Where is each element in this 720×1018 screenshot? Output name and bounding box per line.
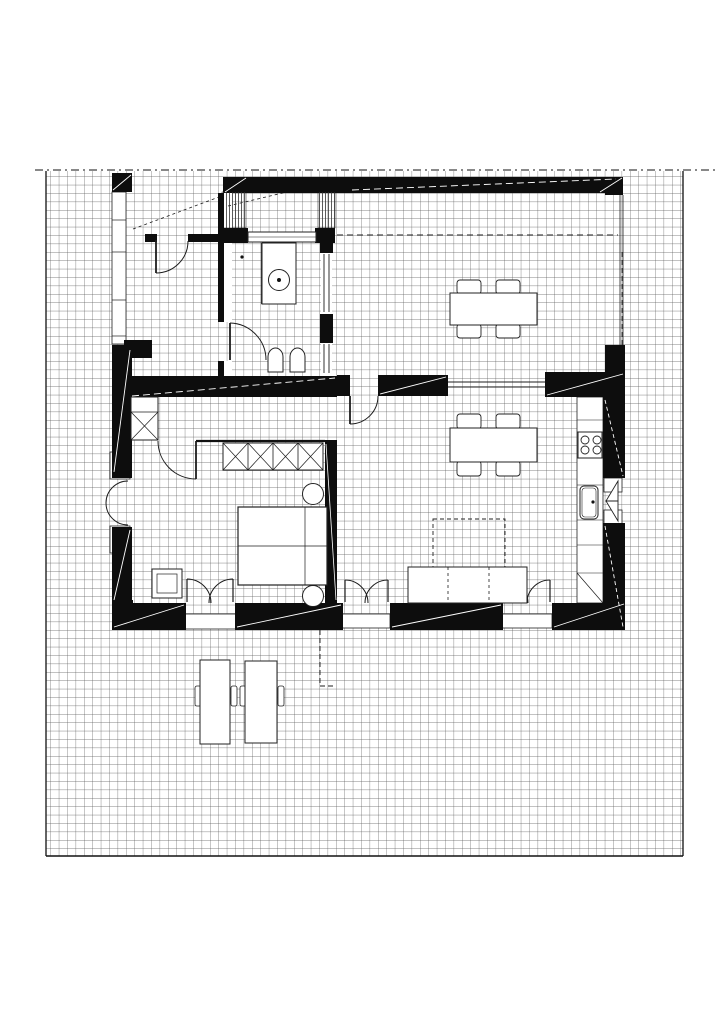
hatched-pier xyxy=(318,192,335,228)
chair xyxy=(457,461,481,476)
wash-basin xyxy=(268,348,283,372)
hall-closet xyxy=(131,397,158,440)
chair xyxy=(496,280,520,294)
floor-plan-canvas xyxy=(0,0,720,1018)
wash-basin xyxy=(290,348,305,372)
nightstand xyxy=(303,586,324,607)
terrace-lounger xyxy=(245,661,277,743)
boiler-center xyxy=(277,278,281,282)
bath-wall-west xyxy=(218,193,224,322)
chair xyxy=(496,414,520,429)
door-threshold xyxy=(502,614,552,628)
bath-wall-west xyxy=(218,361,224,377)
nightstand xyxy=(303,484,324,505)
chair xyxy=(496,324,520,338)
wall-south xyxy=(112,603,186,630)
terrace-lounger xyxy=(200,660,230,744)
hatched-pier xyxy=(222,192,246,228)
floor-plan-page xyxy=(0,0,720,1018)
burner xyxy=(593,446,601,454)
wall-south xyxy=(235,603,343,630)
wall-north xyxy=(223,177,623,193)
chair xyxy=(457,414,481,429)
door-threshold xyxy=(341,614,390,628)
chair xyxy=(457,324,481,338)
lounger-armrest xyxy=(231,686,237,706)
entry-screen-strip xyxy=(112,192,126,344)
bath-wall-east xyxy=(320,228,333,253)
sofa xyxy=(408,567,527,603)
burner xyxy=(593,436,601,444)
wall-mid xyxy=(337,375,350,396)
kitchen-sink xyxy=(580,486,598,519)
entry-door-jamb xyxy=(188,234,222,242)
bath-wall-east xyxy=(320,314,333,343)
wall-east-pier xyxy=(605,345,625,372)
wall-hall-north xyxy=(130,376,337,397)
lounger-armrest xyxy=(278,686,284,706)
chair xyxy=(496,461,520,476)
sink-drain xyxy=(591,500,594,503)
dining-table-lower xyxy=(450,428,537,462)
burner xyxy=(581,446,589,454)
burner xyxy=(581,436,589,444)
armchair xyxy=(152,569,182,598)
wall-south xyxy=(390,603,503,630)
dining-table-upper xyxy=(450,293,537,325)
chair xyxy=(457,280,481,294)
floor-plan-drawing xyxy=(35,170,718,856)
door-threshold xyxy=(184,614,236,629)
shower-drain xyxy=(240,255,243,258)
